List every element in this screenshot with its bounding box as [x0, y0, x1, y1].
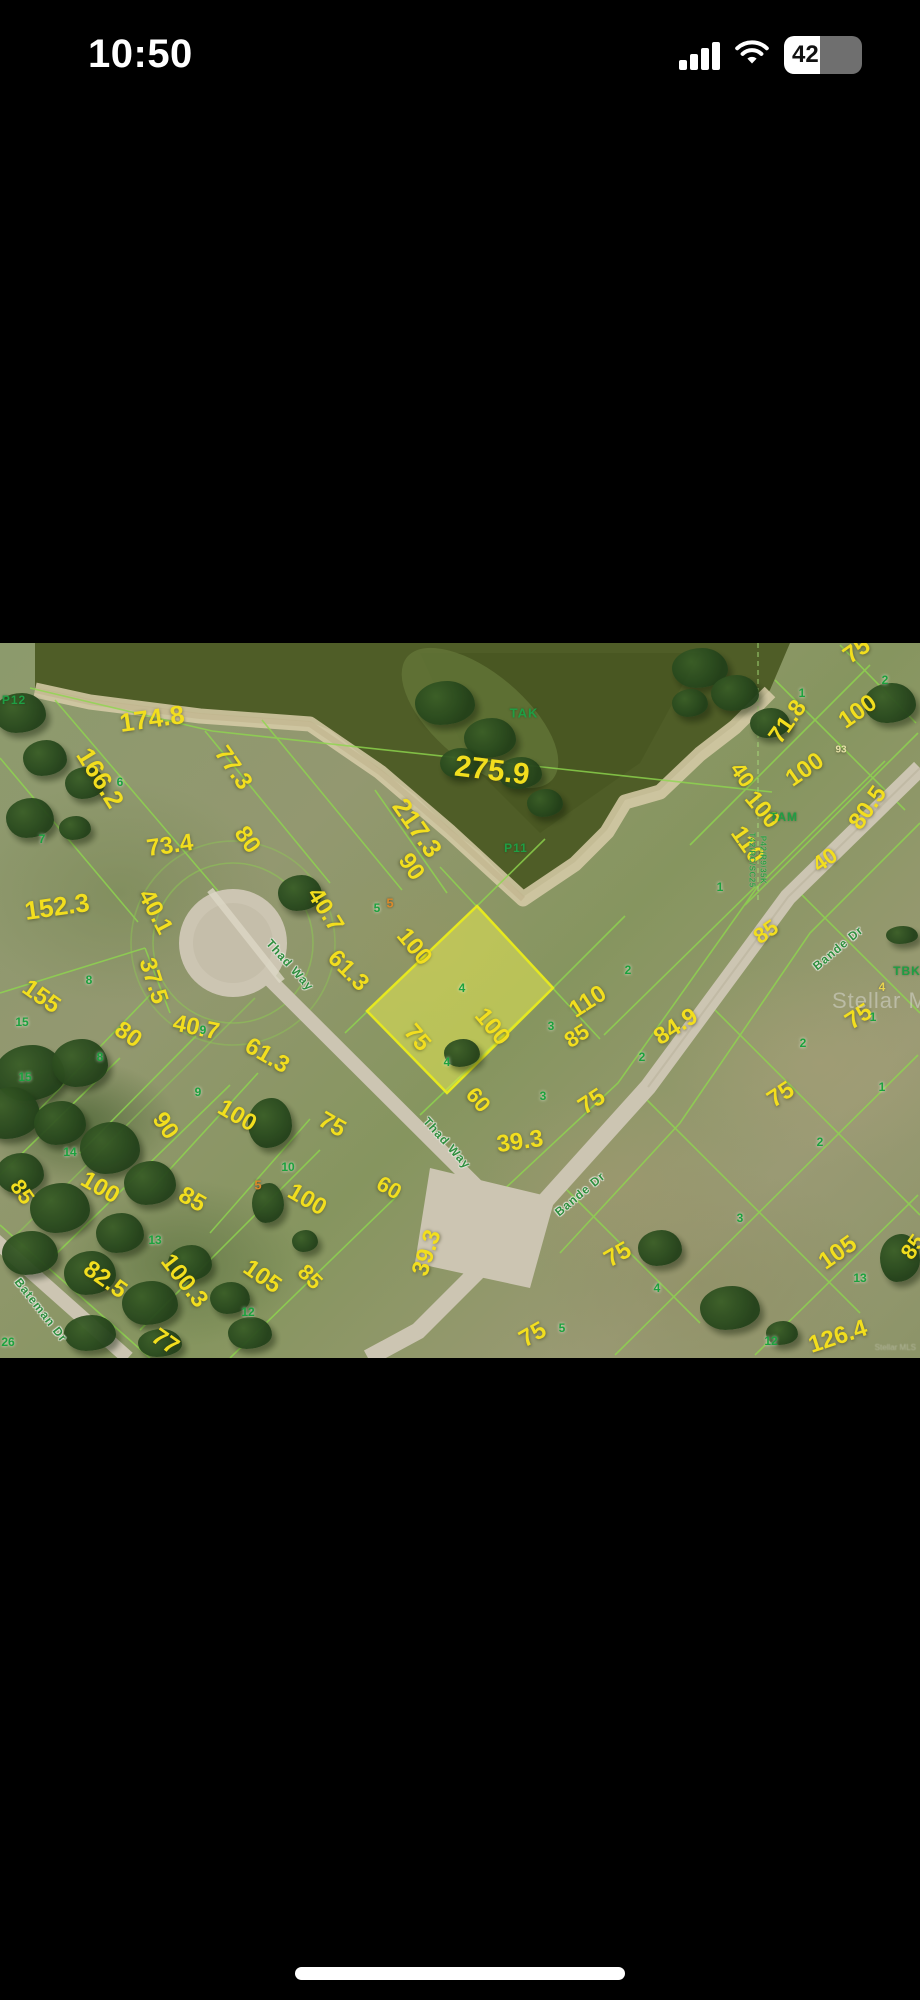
area-label-TBK: TBK: [893, 964, 920, 978]
lot-label-10: 10: [281, 1160, 294, 1174]
lot-label-3: 3: [540, 1089, 547, 1103]
lot-label-8: 8: [97, 1050, 104, 1064]
lot-label-4: 4: [459, 981, 466, 995]
lot-label-15: 15: [18, 1070, 31, 1084]
status-icons: 42: [679, 36, 854, 74]
tree-canopy: [96, 1213, 144, 1253]
tree-canopy: [122, 1281, 178, 1325]
status-bar: 10:50 42: [0, 0, 920, 110]
tree-canopy: [886, 926, 918, 944]
lot-label-15: 15: [15, 1015, 28, 1029]
area-label-P11: P11: [504, 841, 528, 855]
lot-label-5: 5: [559, 1321, 566, 1335]
lot-label-2: 2: [817, 1135, 824, 1149]
area-label-TAM: TAM: [770, 810, 798, 824]
status-time: 10:50: [88, 32, 193, 77]
ref-label-T42/RC/SC25: T42/RC/SC25: [748, 832, 757, 887]
lot-label-13: 13: [853, 1271, 866, 1285]
battery-icon: 42: [784, 36, 854, 74]
lot-label-12: 12: [764, 1334, 777, 1348]
aerial-plat-map-image[interactable]: 275.9174.8166.277.3217.373.4809040.1152.…: [0, 643, 920, 1358]
lot-label-1: 1: [879, 1080, 886, 1094]
tree-canopy: [124, 1161, 176, 1205]
cellular-signal-icon: [679, 40, 720, 70]
tree-canopy: [6, 798, 54, 838]
stellar-mls-watermark: Stellar MLS: [832, 988, 920, 1014]
lot-label-2: 2: [639, 1050, 646, 1064]
lot-label-4: 4: [444, 1055, 451, 1069]
lot-label-6: 6: [117, 775, 124, 789]
tree-canopy: [64, 1315, 116, 1351]
lot-label-3: 3: [548, 1019, 555, 1033]
lot-label-1: 1: [717, 880, 724, 894]
tree-canopy: [34, 1101, 86, 1145]
lot-label-2: 2: [625, 963, 632, 977]
ref-label-P42/R9/35K: P42/R9/35K: [759, 836, 768, 885]
tree-canopy: [527, 789, 563, 817]
tree-canopy: [700, 1286, 760, 1330]
lot-label-5: 5: [374, 901, 381, 915]
pale-label-93: 93: [835, 745, 846, 756]
tree-canopy: [23, 740, 67, 776]
tree-canopy: [711, 675, 759, 711]
lot-label-1: 1: [799, 686, 806, 700]
phone-screen: 10:50 42: [0, 0, 920, 2000]
tree-canopy: [228, 1317, 272, 1349]
tree-canopy: [638, 1230, 682, 1266]
area-label-P12: P12: [2, 693, 26, 707]
tree-canopy: [2, 1231, 58, 1275]
lot-label-9: 9: [195, 1085, 202, 1099]
battery-percent: 42: [784, 36, 862, 74]
lot-label-12: 12: [241, 1305, 254, 1319]
morange-label-5: 5: [386, 896, 393, 911]
map-attribution-text: Stellar MLS: [875, 1343, 916, 1352]
lot-label-2: 2: [882, 673, 889, 687]
tree-canopy: [415, 681, 475, 725]
lot-label-7: 7: [39, 832, 46, 846]
tree-canopy: [672, 689, 708, 717]
home-indicator[interactable]: [295, 1967, 625, 1980]
lot-label-4: 4: [654, 1281, 661, 1295]
wifi-icon: [734, 39, 770, 72]
lot-label-2: 2: [800, 1036, 807, 1050]
lot-label-8: 8: [86, 973, 93, 987]
lot-label-9: 9: [200, 1023, 207, 1037]
lot-label-13: 13: [148, 1233, 161, 1247]
tree-canopy: [59, 816, 91, 840]
lot-label-26: 26: [1, 1335, 14, 1349]
area-label-TAK: TAK: [510, 706, 539, 721]
morange-label-5: 5: [254, 1178, 261, 1193]
lot-label-14: 14: [63, 1145, 76, 1159]
tree-canopy: [292, 1230, 318, 1252]
lot-label-3: 3: [737, 1211, 744, 1225]
